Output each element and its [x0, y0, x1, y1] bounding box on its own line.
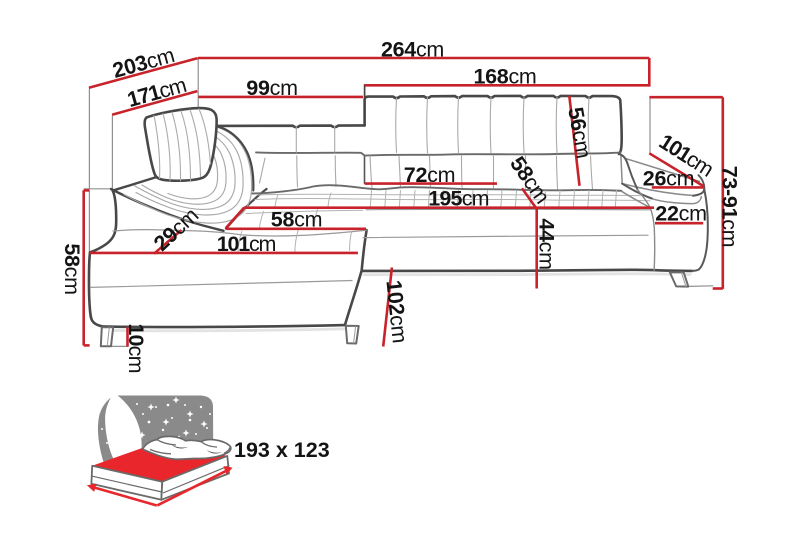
svg-text:44cm: 44cm	[534, 218, 558, 269]
svg-text:56cm: 56cm	[563, 105, 596, 160]
svg-text:168cm: 168cm	[473, 65, 536, 89]
svg-text:10cm: 10cm	[124, 323, 148, 372]
svg-text:58cm: 58cm	[60, 243, 84, 294]
svg-text:171cm: 171cm	[125, 73, 189, 112]
svg-text:22cm: 22cm	[655, 202, 706, 226]
svg-text:264cm: 264cm	[381, 38, 444, 62]
svg-text:195cm: 195cm	[428, 187, 489, 211]
svg-text:73-91cm: 73-91cm	[718, 166, 742, 248]
svg-text:58cm: 58cm	[271, 208, 322, 232]
svg-text:102cm: 102cm	[381, 279, 411, 344]
svg-text:193 x 123: 193 x 123	[234, 438, 330, 462]
svg-text:99cm: 99cm	[246, 76, 297, 100]
svg-text:101cm: 101cm	[217, 232, 276, 256]
svg-text:26cm: 26cm	[643, 167, 694, 191]
svg-text:72cm: 72cm	[404, 163, 455, 187]
